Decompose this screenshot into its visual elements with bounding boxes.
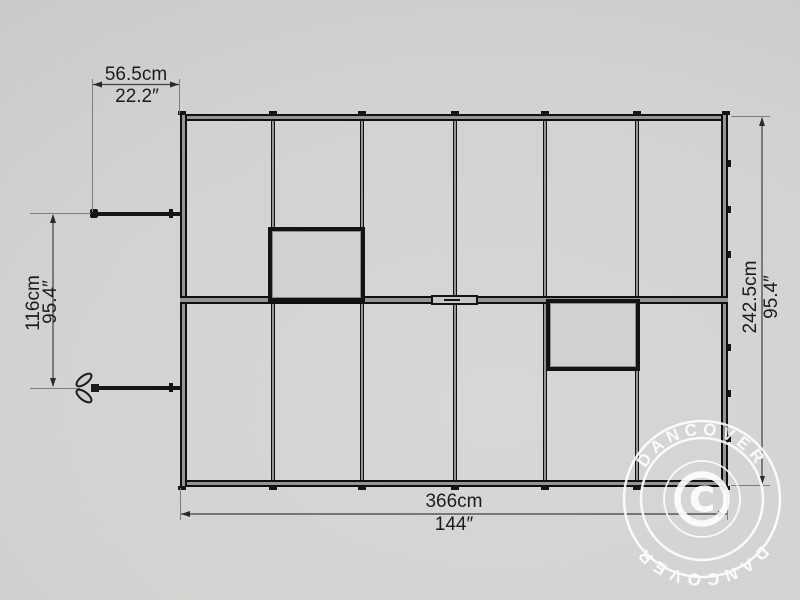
glazing-clip <box>727 390 731 397</box>
dim-bottom-inch-label: 144″ <box>399 515 509 535</box>
watermark-brand-bottom: DANCOVER <box>631 542 772 589</box>
roof-window-left <box>268 227 365 302</box>
watermark-brand-top: DANCOVER <box>633 420 771 471</box>
vent-arm-top-knob <box>90 209 98 218</box>
dim-bottom-cm-label: 366cm <box>399 492 509 512</box>
glazing-clip <box>727 435 731 442</box>
connector-nub <box>541 111 549 115</box>
connector-nub <box>722 111 730 115</box>
dim-right-cm-label: 242.5cm <box>741 242 761 352</box>
dim-left-inch-label: 95.4″ <box>41 247 61 357</box>
roof-window-right <box>546 299 640 371</box>
glazing-clip <box>727 251 731 258</box>
connector-nub <box>178 486 186 490</box>
frame-top-edge <box>180 114 728 121</box>
dancover-watermark: C DANCOVER DANCOVER <box>624 420 780 590</box>
connector-nub <box>178 111 186 115</box>
connector-nub <box>633 111 641 115</box>
connector-nub <box>722 486 730 490</box>
glazing-clip <box>727 160 731 167</box>
glazing-clip <box>727 206 731 213</box>
glazing-clip <box>727 344 731 351</box>
technical-drawing-canvas: C DANCOVER DANCOVER 56.5cm 22.2″ 116cm 9… <box>0 0 800 600</box>
svg-text:DANCOVER: DANCOVER <box>633 420 771 471</box>
connector-nub <box>541 486 549 490</box>
connector-nub <box>451 486 459 490</box>
connector-nub <box>269 111 277 115</box>
rail-handle-dash <box>444 299 460 301</box>
connector-nub <box>451 111 459 115</box>
dim-right-inch-label: 95.4″ <box>762 242 782 352</box>
dim-top-cm-label: 56.5cm <box>81 65 191 85</box>
svg-text:DANCOVER: DANCOVER <box>631 542 772 589</box>
vent-arm-top-tick <box>169 209 173 218</box>
connector-nub <box>633 486 641 490</box>
connector-nub <box>358 486 366 490</box>
connector-nub <box>358 111 366 115</box>
dim-top-inch-label: 22.2″ <box>82 87 192 107</box>
connector-nub <box>269 486 277 490</box>
vent-arm-bottom-tick <box>169 383 173 392</box>
